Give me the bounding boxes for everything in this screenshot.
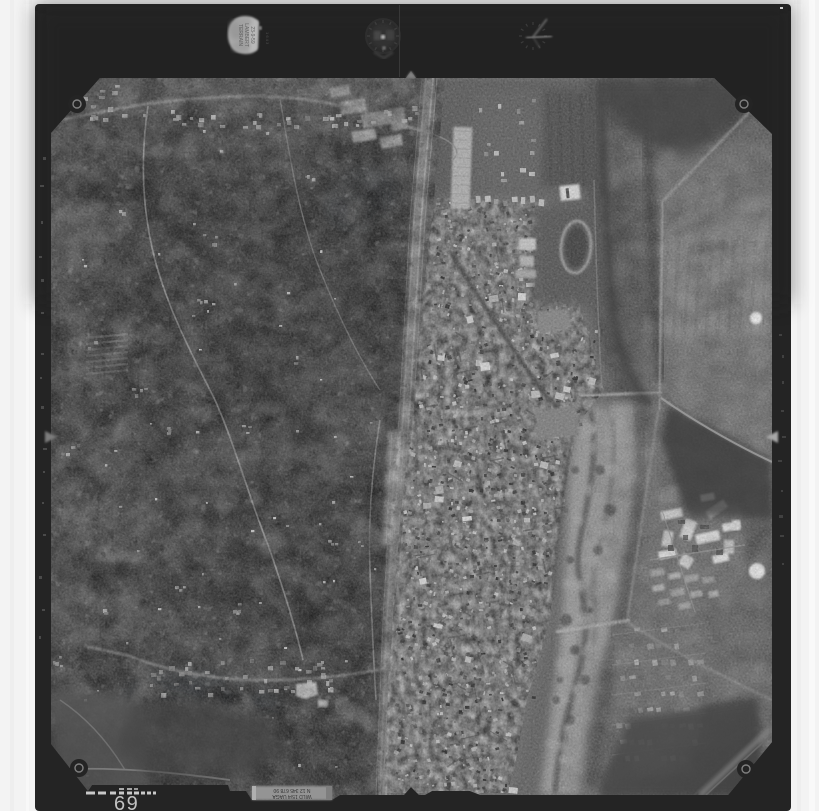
- svg-text:TERRAIN: TERRAIN: [237, 24, 243, 46]
- svg-text:N 12 345 678 90: N 12 345 678 90: [273, 787, 310, 793]
- svg-text:1 6 4 3: 1 6 4 3: [265, 32, 270, 45]
- svg-text:69: 69: [114, 793, 139, 811]
